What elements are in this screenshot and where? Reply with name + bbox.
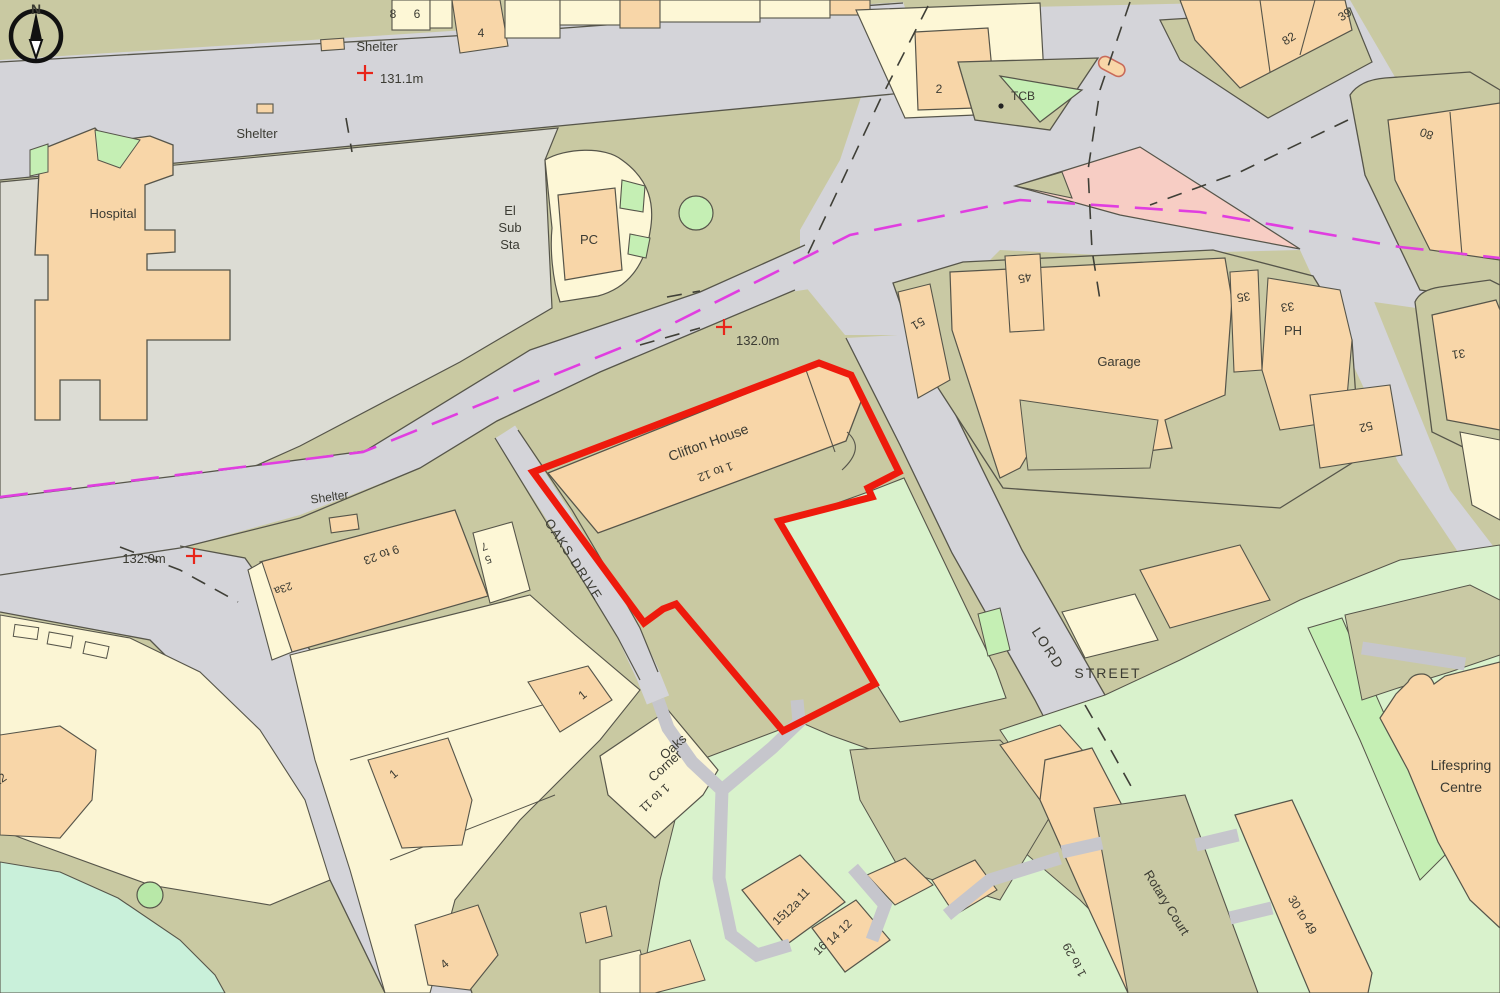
label-height-131-1: 131.1m <box>380 71 423 86</box>
pc-green-2 <box>628 234 650 258</box>
label-pc: PC <box>580 232 598 247</box>
building-35 <box>1230 270 1262 372</box>
building-52 <box>1310 385 1402 468</box>
label-height-132-top: 132.0m <box>736 333 779 348</box>
hospital-green-1 <box>30 144 48 176</box>
label-lifespring-1: Lifespring <box>1431 757 1492 773</box>
label-num-31: 31 <box>1451 346 1466 362</box>
building-45 <box>1005 254 1044 332</box>
label-shelter-1: Shelter <box>356 39 398 54</box>
label-tcb: TCB <box>1011 89 1035 103</box>
label-street: STREET <box>1074 665 1141 681</box>
label-num-2: 2 <box>936 82 943 96</box>
tcb-dot <box>998 103 1003 108</box>
label-sta: Sta <box>500 237 520 252</box>
compass-north-label: N <box>31 1 41 17</box>
house-small-orange <box>580 906 612 943</box>
label-num-8: 8 <box>390 7 397 21</box>
label-num-4-top: 4 <box>478 26 485 40</box>
pc-green-1 <box>620 180 645 212</box>
label-height-132-left: 132.0m <box>122 551 165 566</box>
label-num-33: 33 <box>1280 299 1295 315</box>
map-canvas[interactable]: N Shelter131.1mShelterHospitalElSubStaPC… <box>0 0 1500 993</box>
tree-pc <box>679 196 713 230</box>
label-num-35: 35 <box>1236 289 1251 305</box>
tree-sw <box>137 882 163 908</box>
label-hospital: Hospital <box>90 206 137 221</box>
bus-shelter-3 <box>329 514 359 533</box>
bus-shelter-2 <box>257 104 273 113</box>
label-sub: Sub <box>498 220 521 235</box>
label-num-6: 6 <box>414 7 421 21</box>
os-map: N Shelter131.1mShelterHospitalElSubStaPC… <box>0 0 1500 993</box>
label-garage: Garage <box>1097 354 1140 369</box>
label-ph: PH <box>1284 323 1302 338</box>
label-shelter-2: Shelter <box>236 126 278 141</box>
label-el: El <box>504 203 516 218</box>
label-lifespring-2: Centre <box>1440 779 1482 795</box>
bus-shelter-1 <box>321 38 345 51</box>
